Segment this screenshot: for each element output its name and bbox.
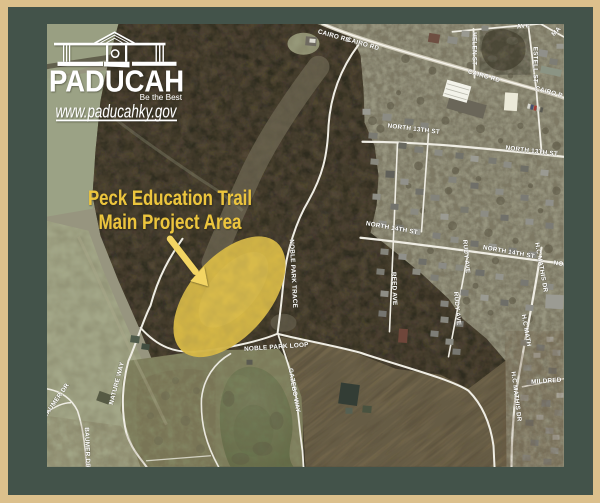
svg-text:REED AVE: REED AVE (389, 271, 397, 305)
svg-text:Main Project Area: Main Project Area (98, 210, 241, 233)
svg-text:ESTELL ST: ESTELL ST (531, 46, 538, 82)
svg-text:HELEN ST: HELEN ST (470, 32, 477, 65)
svg-text:BAUMER DR: BAUMER DR (82, 427, 90, 467)
svg-text:Peck Education Trail: Peck Education Trail (88, 186, 252, 209)
svg-text:www.paducahky.gov: www.paducahky.gov (55, 101, 177, 121)
